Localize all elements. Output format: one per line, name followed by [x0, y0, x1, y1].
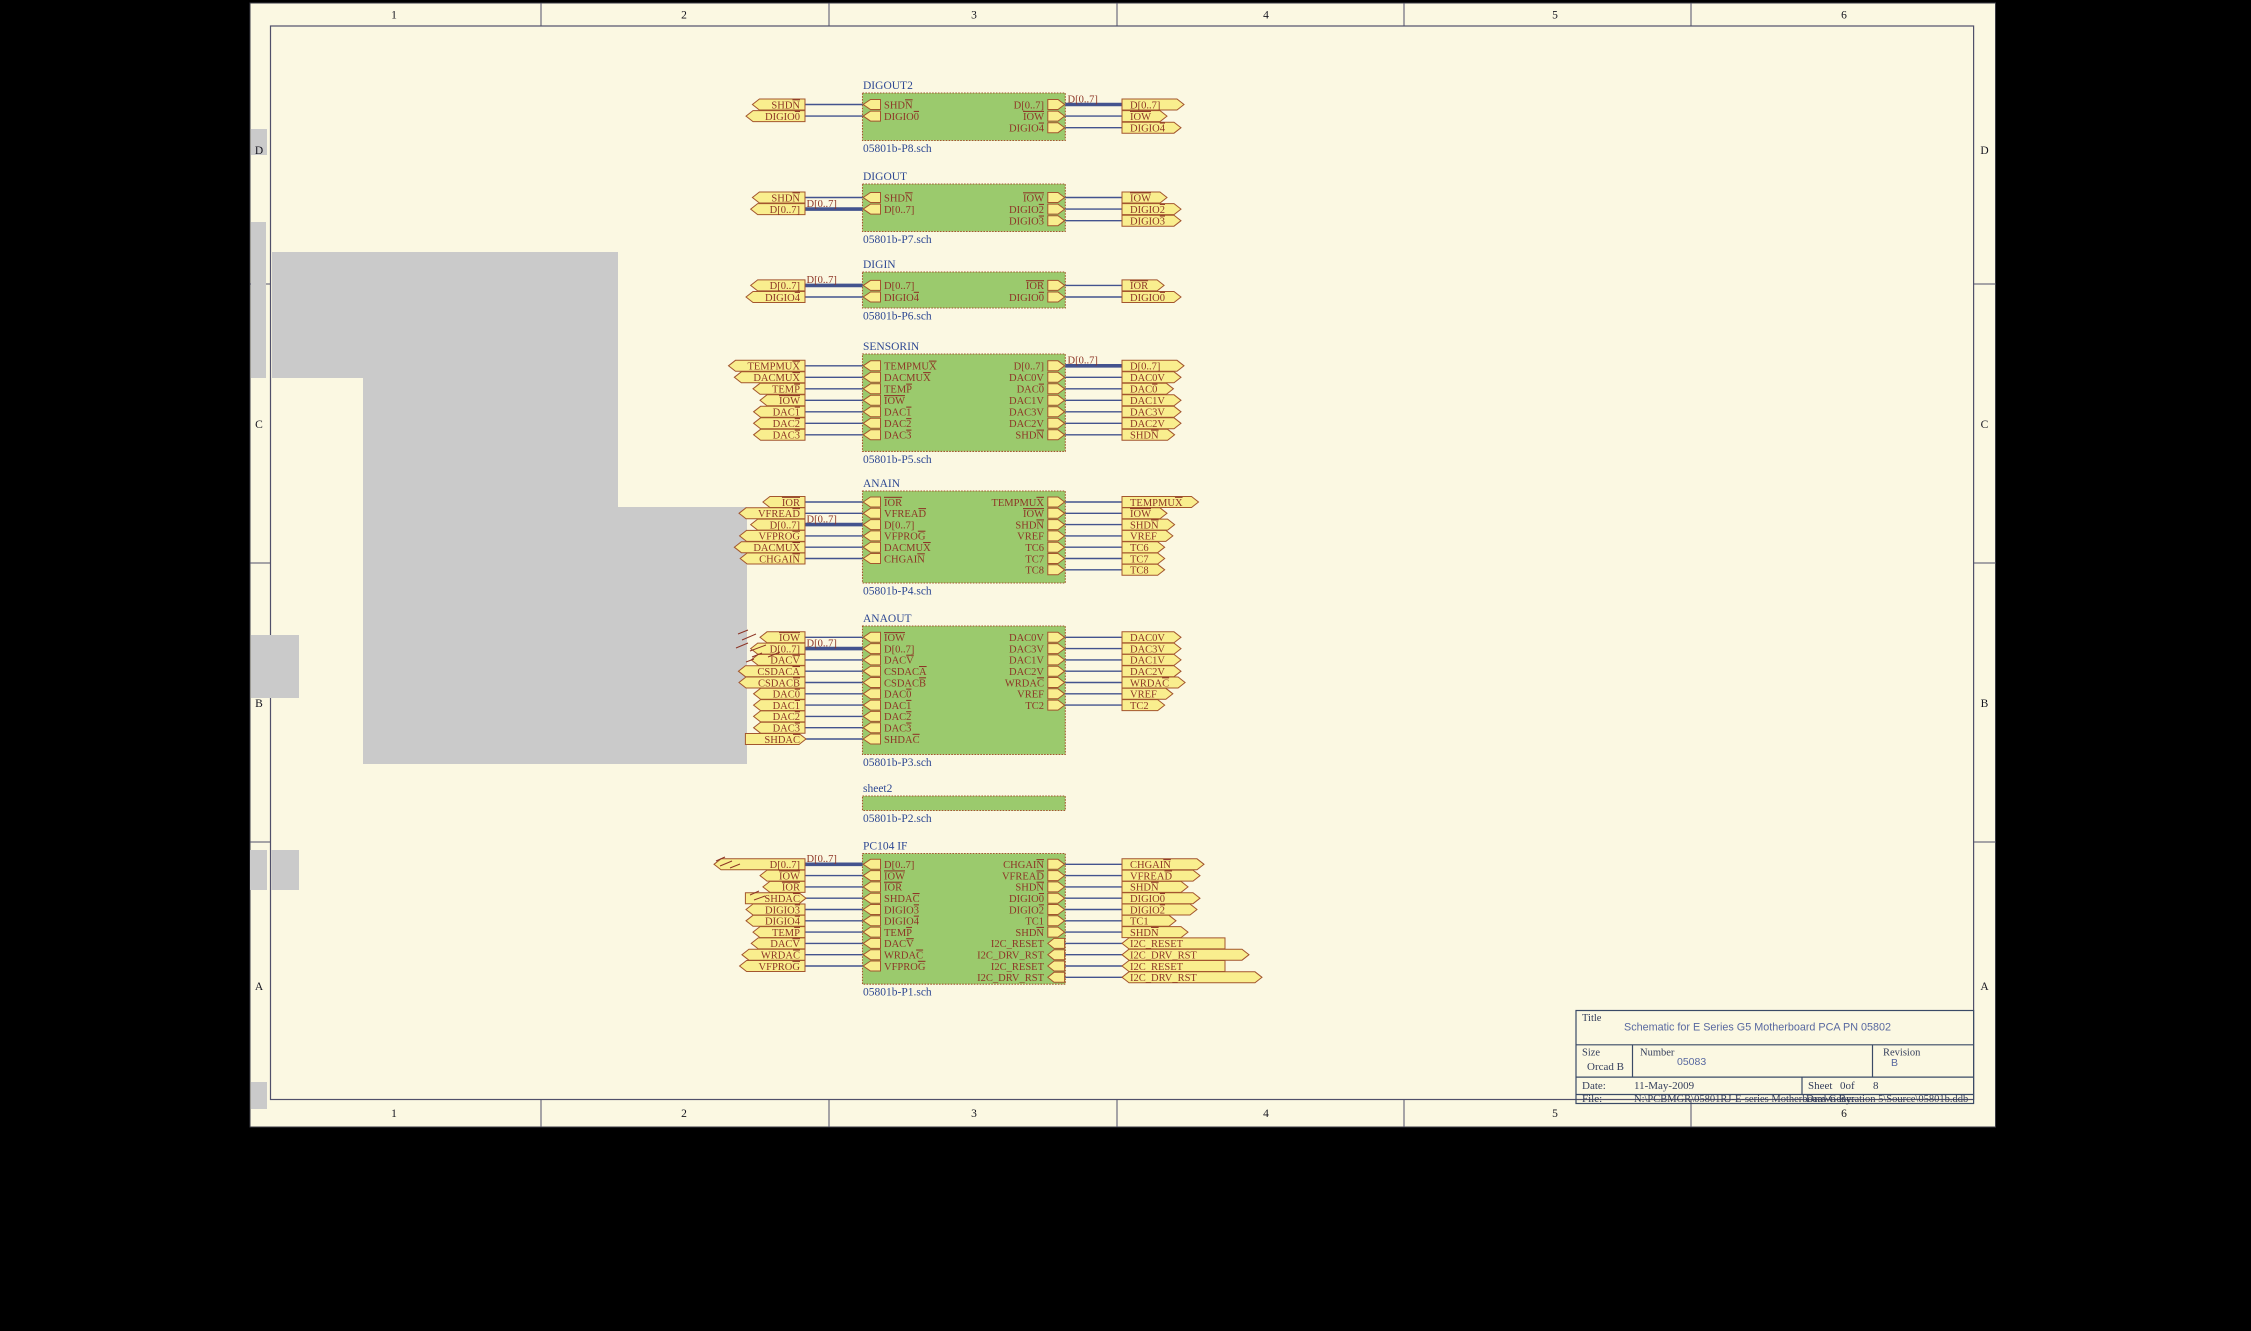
- svg-text:CHGAIN: CHGAIN: [759, 554, 800, 565]
- svg-text:DAC2V: DAC2V: [1009, 419, 1044, 430]
- svg-text:DACMUX: DACMUX: [884, 373, 931, 384]
- svg-text:TC1: TC1: [1025, 917, 1044, 928]
- svg-text:SHDN: SHDN: [771, 193, 800, 204]
- svg-text:CSDACA: CSDACA: [884, 667, 927, 678]
- svg-text:DIGIN: DIGIN: [863, 259, 896, 271]
- svg-text:SHDAC: SHDAC: [764, 735, 800, 746]
- svg-text:DIGIO0: DIGIO0: [1009, 894, 1044, 905]
- svg-text:DIGIO0: DIGIO0: [765, 112, 800, 123]
- svg-text:B: B: [255, 698, 263, 710]
- svg-text:3: 3: [971, 1108, 977, 1120]
- svg-text:4: 4: [1263, 1108, 1269, 1120]
- svg-text:DIGIO3: DIGIO3: [1130, 217, 1165, 228]
- svg-text:I2C_RESET: I2C_RESET: [1130, 962, 1184, 973]
- svg-text:DIGIO0: DIGIO0: [1130, 293, 1165, 304]
- svg-text:D[0..7]: D[0..7]: [807, 199, 837, 210]
- svg-text:VFPROG: VFPROG: [884, 532, 926, 543]
- svg-text:DAC0: DAC0: [884, 690, 911, 701]
- svg-text:C: C: [255, 419, 263, 431]
- svg-text:I2C_DRV_RST: I2C_DRV_RST: [977, 951, 1044, 962]
- svg-text:SHDN: SHDN: [884, 193, 913, 204]
- svg-text:IOW: IOW: [884, 396, 905, 407]
- svg-text:CSDACB: CSDACB: [884, 678, 926, 689]
- svg-text:DAC2V: DAC2V: [1009, 667, 1044, 678]
- svg-text:D[0..7]: D[0..7]: [770, 860, 800, 871]
- svg-text:DIGIO2: DIGIO2: [1009, 905, 1044, 916]
- svg-text:DAC1V: DAC1V: [1130, 396, 1165, 407]
- svg-text:TC8: TC8: [1025, 566, 1044, 577]
- svg-text:DAC1: DAC1: [884, 408, 911, 419]
- svg-text:Number: Number: [1640, 1048, 1675, 1059]
- svg-text:D: D: [255, 145, 263, 157]
- svg-text:SHDAC: SHDAC: [884, 894, 920, 905]
- svg-text:DACMUX: DACMUX: [884, 543, 931, 554]
- svg-text:2: 2: [681, 1108, 687, 1120]
- svg-text:Date:: Date:: [1582, 1080, 1606, 1092]
- svg-text:DAC2: DAC2: [884, 419, 911, 430]
- svg-text:IOR: IOR: [1026, 281, 1044, 292]
- svg-text:VFREAD: VFREAD: [884, 509, 926, 520]
- svg-text:DIGIO4: DIGIO4: [1009, 124, 1045, 135]
- svg-text:TC2: TC2: [1025, 701, 1044, 712]
- svg-text:sheet2: sheet2: [863, 783, 893, 795]
- svg-text:VFREAD: VFREAD: [1130, 871, 1172, 882]
- svg-text:VREF: VREF: [1017, 532, 1044, 543]
- svg-text:SHDN: SHDN: [1015, 520, 1044, 531]
- svg-text:DIGIO0: DIGIO0: [1130, 894, 1165, 905]
- svg-text:IOR: IOR: [1130, 281, 1148, 292]
- svg-text:TC2: TC2: [1130, 701, 1149, 712]
- svg-text:SENSORIN: SENSORIN: [863, 341, 920, 353]
- svg-text:DAC3V: DAC3V: [1009, 644, 1044, 655]
- svg-text:DIGIO3: DIGIO3: [765, 905, 800, 916]
- svg-text:I2C_RESET: I2C_RESET: [991, 939, 1045, 950]
- svg-text:8: 8: [1873, 1080, 1879, 1092]
- svg-text:ANAIN: ANAIN: [863, 478, 901, 490]
- svg-text:D[0..7]: D[0..7]: [1014, 100, 1044, 111]
- svg-text:D[0..7]: D[0..7]: [884, 205, 914, 216]
- svg-text:0of: 0of: [1840, 1080, 1855, 1092]
- svg-text:IOR: IOR: [884, 883, 902, 894]
- svg-text:DACV: DACV: [770, 939, 800, 950]
- svg-text:D[0..7]: D[0..7]: [770, 644, 800, 655]
- svg-text:WRDAC: WRDAC: [884, 951, 923, 962]
- svg-text:IOW: IOW: [779, 633, 800, 644]
- svg-text:6: 6: [1841, 10, 1847, 22]
- svg-text:B: B: [1981, 698, 1989, 710]
- svg-text:DAC3: DAC3: [884, 431, 911, 442]
- svg-text:Revision: Revision: [1883, 1048, 1921, 1059]
- svg-text:IOW: IOW: [1023, 193, 1044, 204]
- svg-text:VFPROG: VFPROG: [759, 962, 801, 973]
- svg-text:DAC0: DAC0: [1017, 385, 1044, 396]
- svg-text:VFREAD: VFREAD: [758, 509, 800, 520]
- svg-text:D[0..7]: D[0..7]: [807, 638, 837, 649]
- svg-text:D[0..7]: D[0..7]: [884, 860, 914, 871]
- svg-text:05801b-P8.sch: 05801b-P8.sch: [863, 143, 932, 155]
- svg-text:D[0..7]: D[0..7]: [1068, 356, 1098, 367]
- svg-text:IOW: IOW: [884, 871, 905, 882]
- svg-text:I2C_DRV_RST: I2C_DRV_RST: [1130, 973, 1197, 984]
- svg-text:VREF: VREF: [1130, 532, 1157, 543]
- svg-text:WRDAC: WRDAC: [1005, 678, 1044, 689]
- svg-text:05801b-P6.sch: 05801b-P6.sch: [863, 311, 932, 323]
- svg-text:DIGIO3: DIGIO3: [1009, 217, 1044, 228]
- svg-text:DAC3V: DAC3V: [1130, 408, 1165, 419]
- svg-text:SHDAC: SHDAC: [764, 894, 800, 905]
- svg-text:CSDACB: CSDACB: [758, 678, 800, 689]
- svg-text:D[0..7]: D[0..7]: [807, 275, 837, 286]
- svg-text:I2C_RESET: I2C_RESET: [1130, 939, 1184, 950]
- svg-text:DAC3: DAC3: [773, 431, 800, 442]
- svg-text:CHGAIN: CHGAIN: [1003, 860, 1044, 871]
- svg-text:D[0..7]: D[0..7]: [1068, 94, 1098, 105]
- svg-text:Sheet: Sheet: [1808, 1080, 1832, 1092]
- svg-text:DIGIO4: DIGIO4: [765, 293, 801, 304]
- svg-text:Schematic for E Series G5 Moth: Schematic for E Series G5 Motherboard PC…: [1624, 1022, 1891, 1034]
- svg-text:SHDAC: SHDAC: [884, 735, 920, 746]
- svg-text:DAC0: DAC0: [773, 690, 800, 701]
- svg-text:Title: Title: [1582, 1013, 1602, 1024]
- svg-text:VFREAD: VFREAD: [1002, 871, 1044, 882]
- svg-text:D: D: [1980, 145, 1988, 157]
- svg-text:A: A: [1980, 981, 1989, 993]
- svg-text:I2C_RESET: I2C_RESET: [991, 962, 1045, 973]
- svg-text:Drawn By:: Drawn By:: [1806, 1093, 1855, 1105]
- svg-text:IOW: IOW: [779, 396, 800, 407]
- svg-text:DIGIO2: DIGIO2: [1130, 205, 1165, 216]
- svg-text:SHDN: SHDN: [771, 100, 800, 111]
- svg-text:05801b-P4.sch: 05801b-P4.sch: [863, 586, 932, 598]
- svg-text:1: 1: [391, 1108, 397, 1120]
- svg-text:IOW: IOW: [884, 633, 905, 644]
- svg-text:VFPROG: VFPROG: [884, 962, 926, 973]
- svg-text:SHDN: SHDN: [1015, 431, 1044, 442]
- svg-text:DACV: DACV: [770, 656, 800, 667]
- svg-text:3: 3: [971, 10, 977, 22]
- svg-text:IOR: IOR: [782, 498, 800, 509]
- svg-text:DIGIO4: DIGIO4: [884, 917, 920, 928]
- svg-text:D[0..7]: D[0..7]: [1130, 100, 1160, 111]
- svg-text:Orcad B: Orcad B: [1587, 1061, 1624, 1073]
- svg-text:VREF: VREF: [1130, 690, 1157, 701]
- svg-text:DACMUX: DACMUX: [753, 543, 800, 554]
- svg-text:D[0..7]: D[0..7]: [884, 281, 914, 292]
- svg-text:DACV: DACV: [884, 939, 914, 950]
- svg-text:DAC0V: DAC0V: [1009, 373, 1044, 384]
- svg-text:DAC1: DAC1: [773, 408, 800, 419]
- svg-text:VFPROG: VFPROG: [759, 532, 801, 543]
- svg-text:TC6: TC6: [1130, 543, 1149, 554]
- svg-text:IOW: IOW: [1130, 193, 1151, 204]
- svg-text:DAC3V: DAC3V: [1009, 408, 1044, 419]
- svg-text:WRDAC: WRDAC: [1130, 678, 1169, 689]
- svg-text:ANAOUT: ANAOUT: [863, 613, 912, 625]
- svg-text:IOR: IOR: [782, 883, 800, 894]
- svg-text:IOW: IOW: [1130, 112, 1151, 123]
- svg-text:DAC3V: DAC3V: [1130, 644, 1165, 655]
- svg-text:TC8: TC8: [1130, 566, 1149, 577]
- svg-text:DAC1V: DAC1V: [1130, 656, 1165, 667]
- svg-text:D[0..7]: D[0..7]: [770, 281, 800, 292]
- svg-text:I2C_DRV_RST: I2C_DRV_RST: [977, 973, 1044, 984]
- svg-text:DIGIO0: DIGIO0: [884, 112, 919, 123]
- svg-text:SHDN: SHDN: [1130, 431, 1159, 442]
- svg-text:DAC2V: DAC2V: [1130, 667, 1165, 678]
- svg-text:TC7: TC7: [1130, 554, 1149, 565]
- svg-text:DAC0V: DAC0V: [1130, 633, 1165, 644]
- svg-text:5: 5: [1552, 1108, 1558, 1120]
- svg-text:DAC2: DAC2: [884, 712, 911, 723]
- svg-text:D[0..7]: D[0..7]: [770, 520, 800, 531]
- svg-text:DAC3: DAC3: [773, 724, 800, 735]
- svg-text:DAC2: DAC2: [773, 419, 800, 430]
- svg-text:DACMUX: DACMUX: [753, 373, 800, 384]
- svg-text:N:\PCBMGR\05801RJ-E-series Mot: N:\PCBMGR\05801RJ-E-series Motherboard G…: [1634, 1094, 1968, 1105]
- svg-text:D[0..7]: D[0..7]: [884, 644, 914, 655]
- svg-text:DIGOUT: DIGOUT: [863, 171, 907, 183]
- svg-text:DIGIO3: DIGIO3: [884, 905, 919, 916]
- svg-text:IOW: IOW: [1023, 509, 1044, 520]
- svg-text:TEMP: TEMP: [772, 385, 800, 396]
- svg-text:DIGIO4: DIGIO4: [1130, 124, 1166, 135]
- svg-text:4: 4: [1263, 10, 1269, 22]
- svg-text:DAC0V: DAC0V: [1130, 373, 1165, 384]
- svg-text:DAC3: DAC3: [884, 724, 911, 735]
- svg-text:DIGIO0: DIGIO0: [1009, 293, 1044, 304]
- svg-text:11-May-2009: 11-May-2009: [1634, 1080, 1695, 1092]
- svg-text:D[0..7]: D[0..7]: [770, 205, 800, 216]
- svg-text:05801b-P5.sch: 05801b-P5.sch: [863, 454, 932, 466]
- svg-text:D[0..7]: D[0..7]: [807, 854, 837, 865]
- svg-text:SHDN: SHDN: [1130, 883, 1159, 894]
- svg-text:CHGAIN: CHGAIN: [1130, 860, 1171, 871]
- svg-text:IOW: IOW: [1023, 112, 1044, 123]
- svg-text:TEMPMUX: TEMPMUX: [991, 498, 1044, 509]
- svg-text:DIGOUT2: DIGOUT2: [863, 80, 913, 92]
- svg-text:DACV: DACV: [884, 656, 914, 667]
- svg-text:05801b-P7.sch: 05801b-P7.sch: [863, 234, 932, 246]
- svg-text:DIGIO2: DIGIO2: [1130, 905, 1165, 916]
- svg-text:WRDAC: WRDAC: [761, 951, 800, 962]
- svg-text:05083: 05083: [1677, 1056, 1706, 1068]
- svg-text:DAC1V: DAC1V: [1009, 656, 1044, 667]
- svg-text:D[0..7]: D[0..7]: [807, 514, 837, 525]
- svg-text:DIGIO4: DIGIO4: [884, 293, 920, 304]
- svg-text:DAC0: DAC0: [1130, 385, 1157, 396]
- svg-text:I2C_DRV_RST: I2C_DRV_RST: [1130, 951, 1197, 962]
- svg-text:DAC1V: DAC1V: [1009, 396, 1044, 407]
- svg-text:6: 6: [1841, 1108, 1847, 1120]
- svg-text:IOW: IOW: [779, 871, 800, 882]
- svg-text:SHDN: SHDN: [884, 100, 913, 111]
- svg-text:PC104 IF: PC104 IF: [863, 841, 907, 853]
- svg-text:1: 1: [391, 10, 397, 22]
- svg-text:Size: Size: [1582, 1048, 1600, 1059]
- svg-text:IOR: IOR: [884, 498, 902, 509]
- svg-text:DAC2V: DAC2V: [1130, 419, 1165, 430]
- svg-text:SHDN: SHDN: [1130, 928, 1159, 939]
- svg-text:VREF: VREF: [1017, 690, 1044, 701]
- svg-text:DAC1: DAC1: [884, 701, 911, 712]
- svg-text:DAC1: DAC1: [773, 701, 800, 712]
- svg-text:DAC0V: DAC0V: [1009, 633, 1044, 644]
- svg-text:TC1: TC1: [1130, 917, 1149, 928]
- svg-text:TEMPMUX: TEMPMUX: [747, 362, 800, 373]
- svg-text:B: B: [1891, 1057, 1898, 1069]
- svg-text:SHDN: SHDN: [1130, 520, 1159, 531]
- svg-text:TEMP: TEMP: [884, 385, 912, 396]
- svg-text:DAC2: DAC2: [773, 712, 800, 723]
- svg-text:TC6: TC6: [1025, 543, 1044, 554]
- svg-text:TEMPMUX: TEMPMUX: [884, 362, 937, 373]
- svg-text:File:: File:: [1582, 1093, 1602, 1105]
- svg-text:CHGAIN: CHGAIN: [884, 554, 925, 565]
- svg-text:SHDN: SHDN: [1015, 928, 1044, 939]
- svg-text:DIGIO4: DIGIO4: [765, 917, 801, 928]
- svg-text:2: 2: [681, 10, 687, 22]
- svg-text:D[0..7]: D[0..7]: [1014, 362, 1044, 373]
- svg-text:05801b-P3.sch: 05801b-P3.sch: [863, 757, 932, 769]
- svg-text:SHDN: SHDN: [1015, 883, 1044, 894]
- svg-text:D[0..7]: D[0..7]: [884, 520, 914, 531]
- svg-text:D[0..7]: D[0..7]: [1130, 362, 1160, 373]
- svg-text:TEMPMUX: TEMPMUX: [1130, 498, 1183, 509]
- svg-text:05801b-P1.sch: 05801b-P1.sch: [863, 987, 932, 999]
- svg-text:5: 5: [1552, 10, 1558, 22]
- svg-text:TC7: TC7: [1025, 554, 1044, 565]
- svg-text:DIGIO2: DIGIO2: [1009, 205, 1044, 216]
- svg-text:A: A: [255, 981, 264, 993]
- svg-text:TEMP: TEMP: [772, 928, 800, 939]
- svg-text:C: C: [1981, 419, 1989, 431]
- svg-text:CSDACA: CSDACA: [757, 667, 800, 678]
- svg-text:TEMP: TEMP: [884, 928, 912, 939]
- svg-text:IOW: IOW: [1130, 509, 1151, 520]
- svg-text:05801b-P2.sch: 05801b-P2.sch: [863, 813, 932, 825]
